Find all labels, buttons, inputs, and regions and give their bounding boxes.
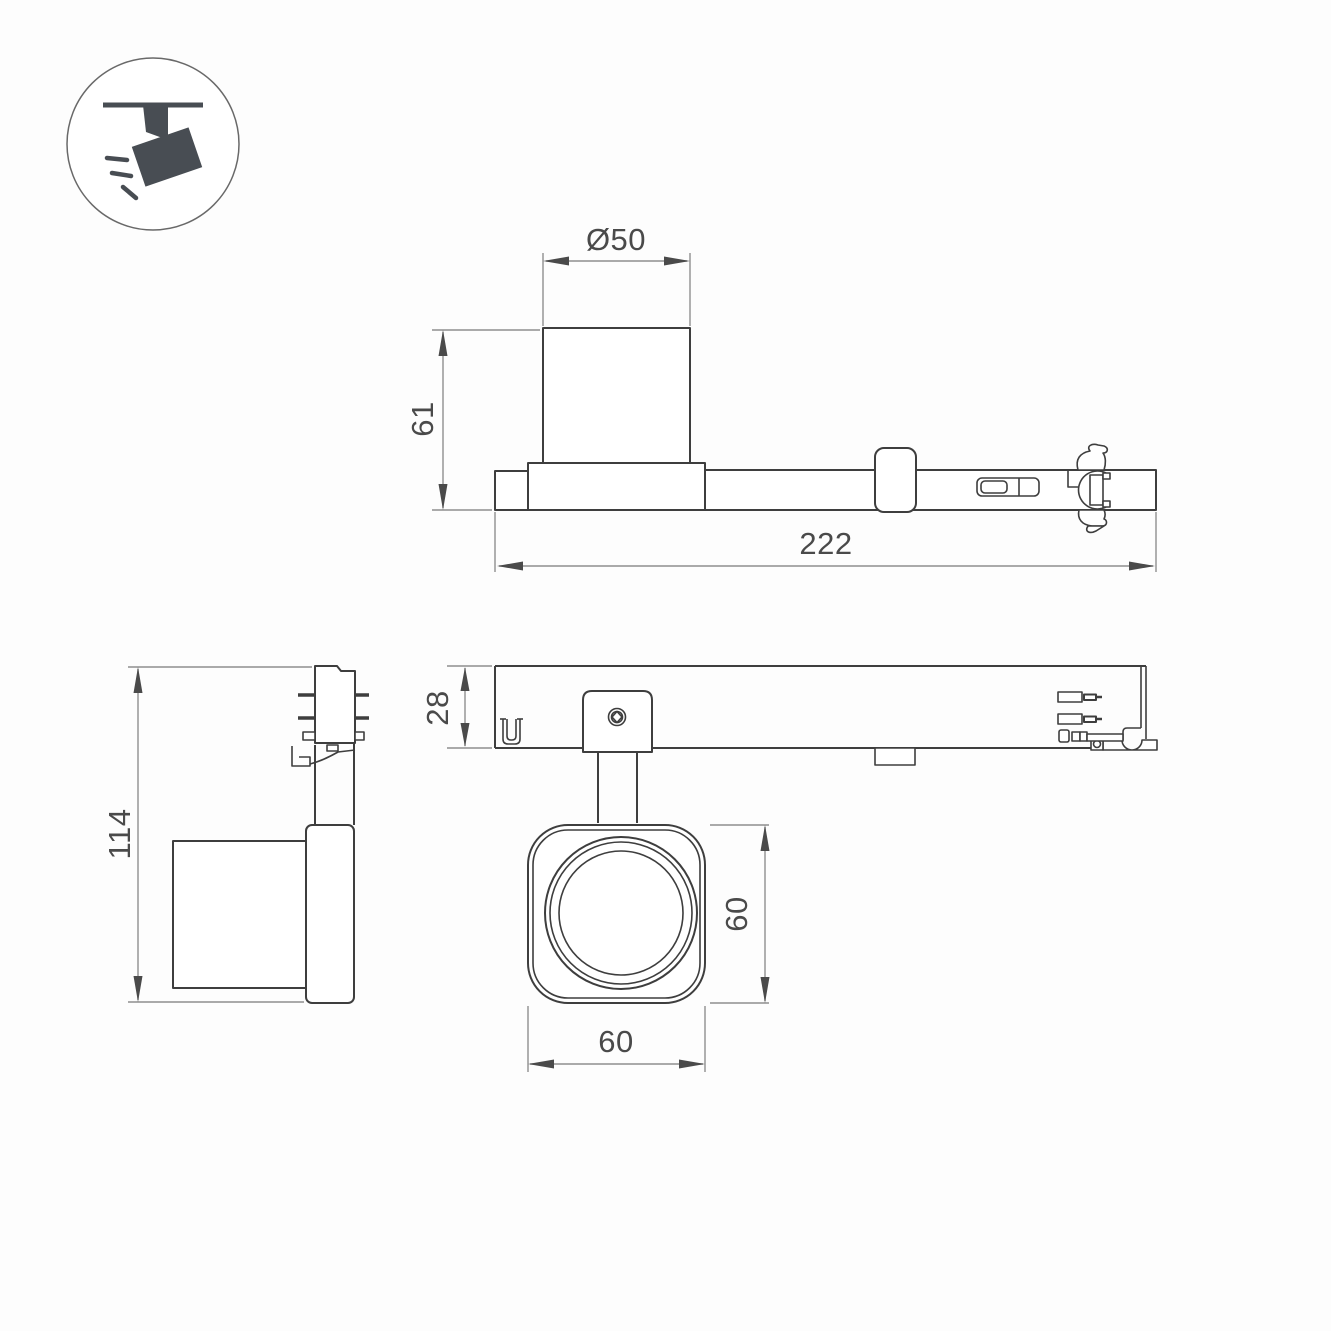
track-light-icon-badge: [67, 58, 239, 230]
track-end-step: [495, 471, 528, 510]
dim-label-cylinder-height: 61: [405, 401, 440, 436]
latch-lever: [292, 745, 355, 766]
top-elevation-view: [495, 328, 1156, 532]
side-view: [173, 666, 369, 1003]
lamp-cylinder: [543, 328, 690, 463]
adapter-flange: [303, 732, 315, 740]
top-view-dimensions: [432, 253, 1156, 572]
wire-clamp: [500, 719, 523, 744]
dimension-drawing: Ø50 61 222 114: [0, 0, 1331, 1331]
dim-label-overall-height: 114: [102, 809, 137, 860]
track-adapter-body: [315, 666, 355, 743]
slide-switch: [977, 478, 1039, 496]
lamp-base: [528, 463, 705, 510]
dim-label-head-width: 60: [598, 1024, 633, 1059]
adapter-flange: [355, 732, 364, 740]
drawing-svg: Ø50 61 222 114: [0, 0, 1331, 1331]
track-contacts: [1058, 692, 1123, 742]
track-bottom-view: [495, 666, 1157, 823]
lamp-body-side: [173, 841, 308, 988]
mounting-clip: [875, 448, 916, 512]
bottom-tab: [875, 748, 915, 765]
dim-label-profile-height: 28: [420, 690, 455, 725]
pivot-screw: [609, 709, 626, 726]
lamp-head-side: [306, 825, 354, 1003]
head-front-view: [528, 825, 705, 1003]
dim-label-diameter: Ø50: [586, 222, 646, 257]
dim-label-length: 222: [799, 526, 852, 561]
dim-label-head-height: 60: [719, 896, 754, 931]
